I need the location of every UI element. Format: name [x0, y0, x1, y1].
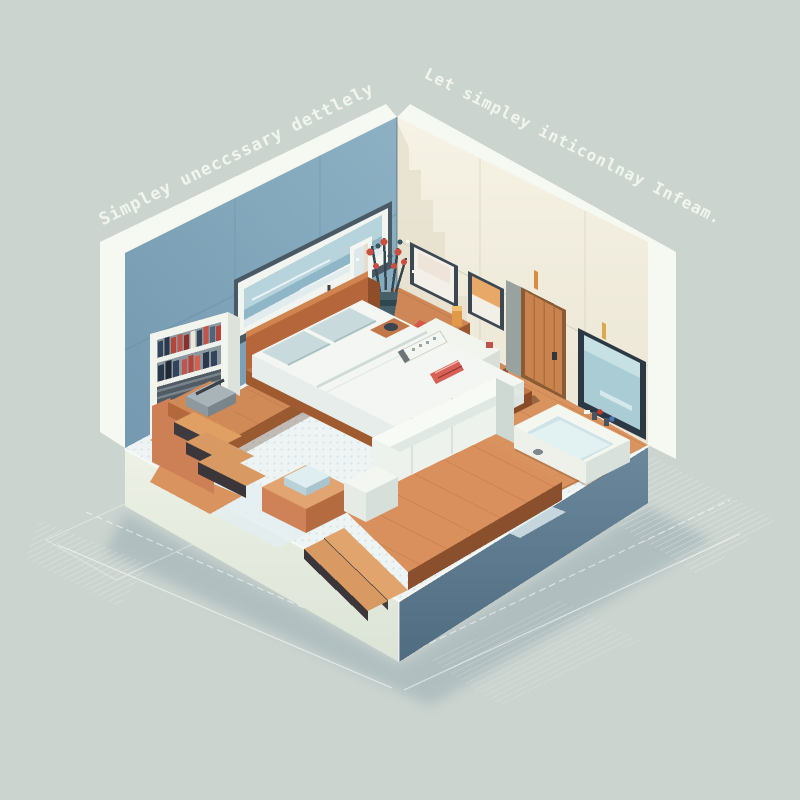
pixel-room-illustration: Simpley uneccssary dettlely Let simpley …: [0, 0, 800, 800]
wall-accent-dash-1: [534, 270, 538, 290]
floor-pebble: [533, 449, 543, 455]
bedside-dish: [384, 323, 398, 331]
wall-accent-dash-2: [602, 322, 606, 340]
isometric-room-scene: [0, 0, 800, 800]
door-handle: [552, 352, 557, 360]
